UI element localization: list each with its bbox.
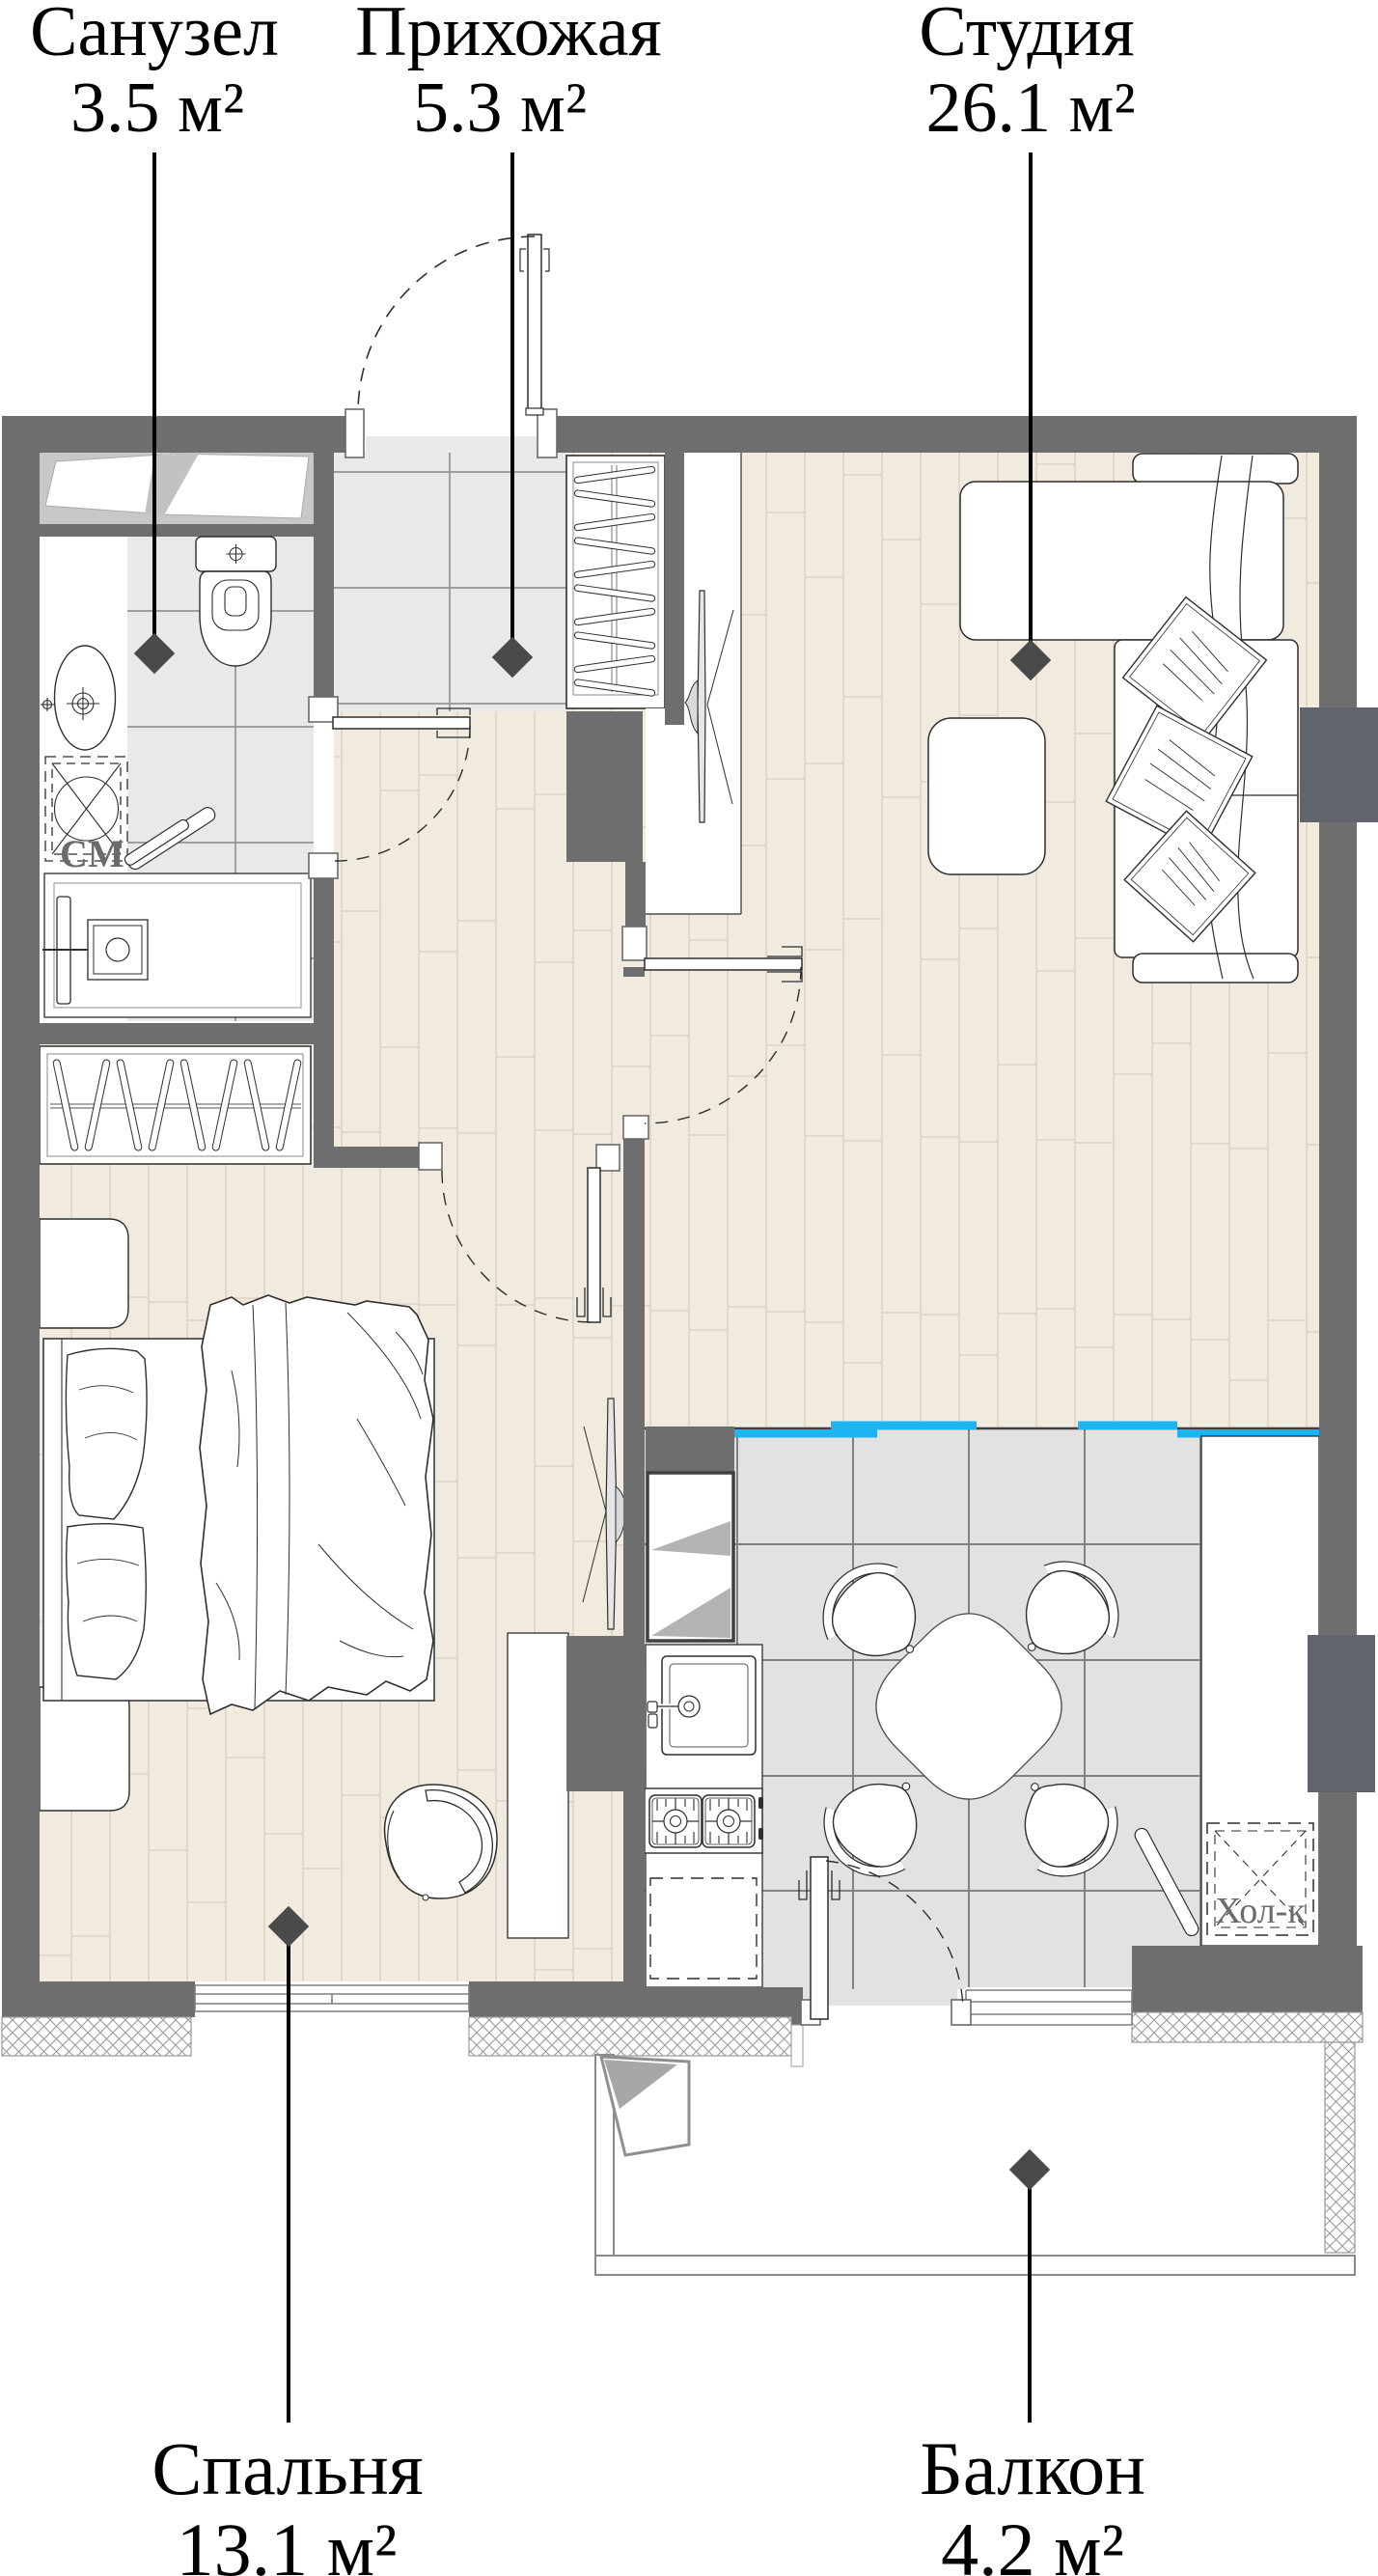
svg-text:Балкон: Балкон	[920, 2426, 1145, 2510]
svg-text:Спальня: Спальня	[152, 2426, 423, 2510]
svg-text:4.2 м²: 4.2 м²	[941, 2507, 1124, 2576]
svg-text:Студия: Студия	[919, 0, 1134, 71]
svg-text:5.3 м²: 5.3 м²	[413, 69, 587, 148]
svg-text:Хол-к: Хол-к	[1215, 1891, 1306, 1931]
svg-text:3.5 м²: 3.5 м²	[70, 69, 244, 148]
svg-text:Прихожая: Прихожая	[355, 0, 661, 71]
svg-text:26.1 м²: 26.1 м²	[925, 69, 1135, 148]
svg-text:СМ: СМ	[60, 832, 124, 875]
svg-text:13.1 м²: 13.1 м²	[177, 2507, 398, 2576]
svg-text:Санузел: Санузел	[30, 0, 279, 71]
